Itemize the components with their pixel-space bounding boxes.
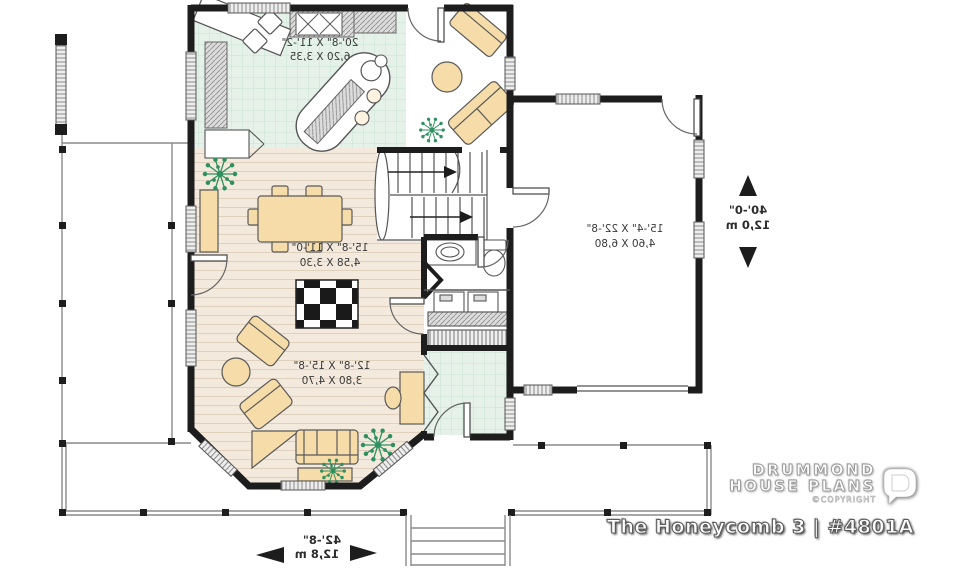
- width-imperial: 42'-8": [303, 533, 341, 547]
- window: [186, 310, 196, 366]
- door-leaf: [478, 237, 484, 267]
- garage-door-opening: [577, 386, 688, 391]
- window: [694, 140, 704, 178]
- brand-copyright: ©COPYRIGHT: [729, 495, 876, 504]
- dining-table: [258, 196, 342, 242]
- dining-chair: [341, 209, 352, 225]
- window: [186, 52, 196, 120]
- door-leaf: [694, 99, 700, 136]
- window: [694, 222, 704, 258]
- staircase: [375, 150, 487, 240]
- arrow-left-icon: [256, 547, 284, 563]
- arrow-right-icon: [350, 545, 377, 561]
- living-dim-metric: 3,80 X 4,70: [302, 375, 363, 387]
- arrow-up-icon: [739, 175, 757, 196]
- side-table: [222, 358, 250, 386]
- porch-window-strip: [55, 34, 67, 135]
- desk-chair: [385, 387, 401, 409]
- depth-imperial: 40'-0": [729, 203, 767, 217]
- door-leaf: [513, 188, 549, 194]
- ottoman: [432, 62, 462, 92]
- kitchen-sink: [296, 13, 342, 35]
- dining-dim-imperial: 15'-8" X 11'-0": [292, 242, 369, 254]
- plan-title: The Honeycomb 3 | #4801A: [607, 516, 914, 538]
- dining-chair: [306, 186, 322, 197]
- garage-dim-imperial: 15'-4" X 22'-8": [587, 223, 664, 235]
- living-dim-imperial: 12'-8" X 15'-8": [294, 360, 371, 372]
- brand-name-line1: DRUMMOND: [729, 462, 876, 478]
- closet-clothes: [428, 330, 508, 346]
- drummond-logo-icon: [880, 464, 920, 510]
- dining-dim-metric: 4,58 X 3,30: [300, 257, 361, 269]
- sofa: [296, 430, 358, 464]
- window: [228, 3, 290, 13]
- door-leaf: [464, 403, 470, 437]
- laundry: [428, 292, 508, 346]
- brand-logo-block: DRUMMOND HOUSE PLANS ©COPYRIGHT: [729, 462, 876, 504]
- dining-chair: [248, 209, 259, 225]
- kitchen-dim-metric: 6,20 X 3,35: [290, 51, 351, 63]
- door-leaf: [438, 8, 444, 42]
- plant-icon: [420, 118, 445, 142]
- door-leaf: [390, 298, 424, 304]
- garage-dim-metric: 4,60 X 6,80: [595, 238, 656, 250]
- dining-chair: [272, 186, 288, 197]
- toilet-bowl: [483, 250, 505, 276]
- arrow-down-icon: [739, 247, 757, 268]
- dining-chair: [272, 241, 288, 252]
- width-metric: 12,8 m: [295, 547, 339, 561]
- door-leaf: [191, 255, 227, 261]
- laundry-counter: [428, 312, 508, 326]
- width-dimension: 42'-8" 12,8 m: [256, 533, 377, 563]
- window: [281, 481, 325, 490]
- desk: [400, 372, 424, 424]
- front-steps: [406, 515, 510, 566]
- kitchen-dim-imperial: 20'-8" X 11'-2": [282, 37, 359, 49]
- window: [505, 57, 515, 90]
- buffet: [200, 190, 218, 252]
- bathroom-fixtures: [426, 240, 506, 276]
- depth-metric: 12,0 m: [726, 218, 770, 232]
- brand-name-line2: HOUSE PLANS: [729, 478, 876, 494]
- window: [505, 398, 515, 430]
- toilet-tank: [482, 240, 506, 250]
- floor-plan-page: 20'-8" X 11'-2" 6,20 X 3,35 15'-8" X 11'…: [0, 0, 960, 569]
- window: [556, 94, 600, 104]
- window: [186, 206, 196, 252]
- fireplace: [296, 280, 358, 328]
- window: [524, 385, 552, 395]
- depth-dimension: 40'-0" 12,0 m: [726, 175, 770, 268]
